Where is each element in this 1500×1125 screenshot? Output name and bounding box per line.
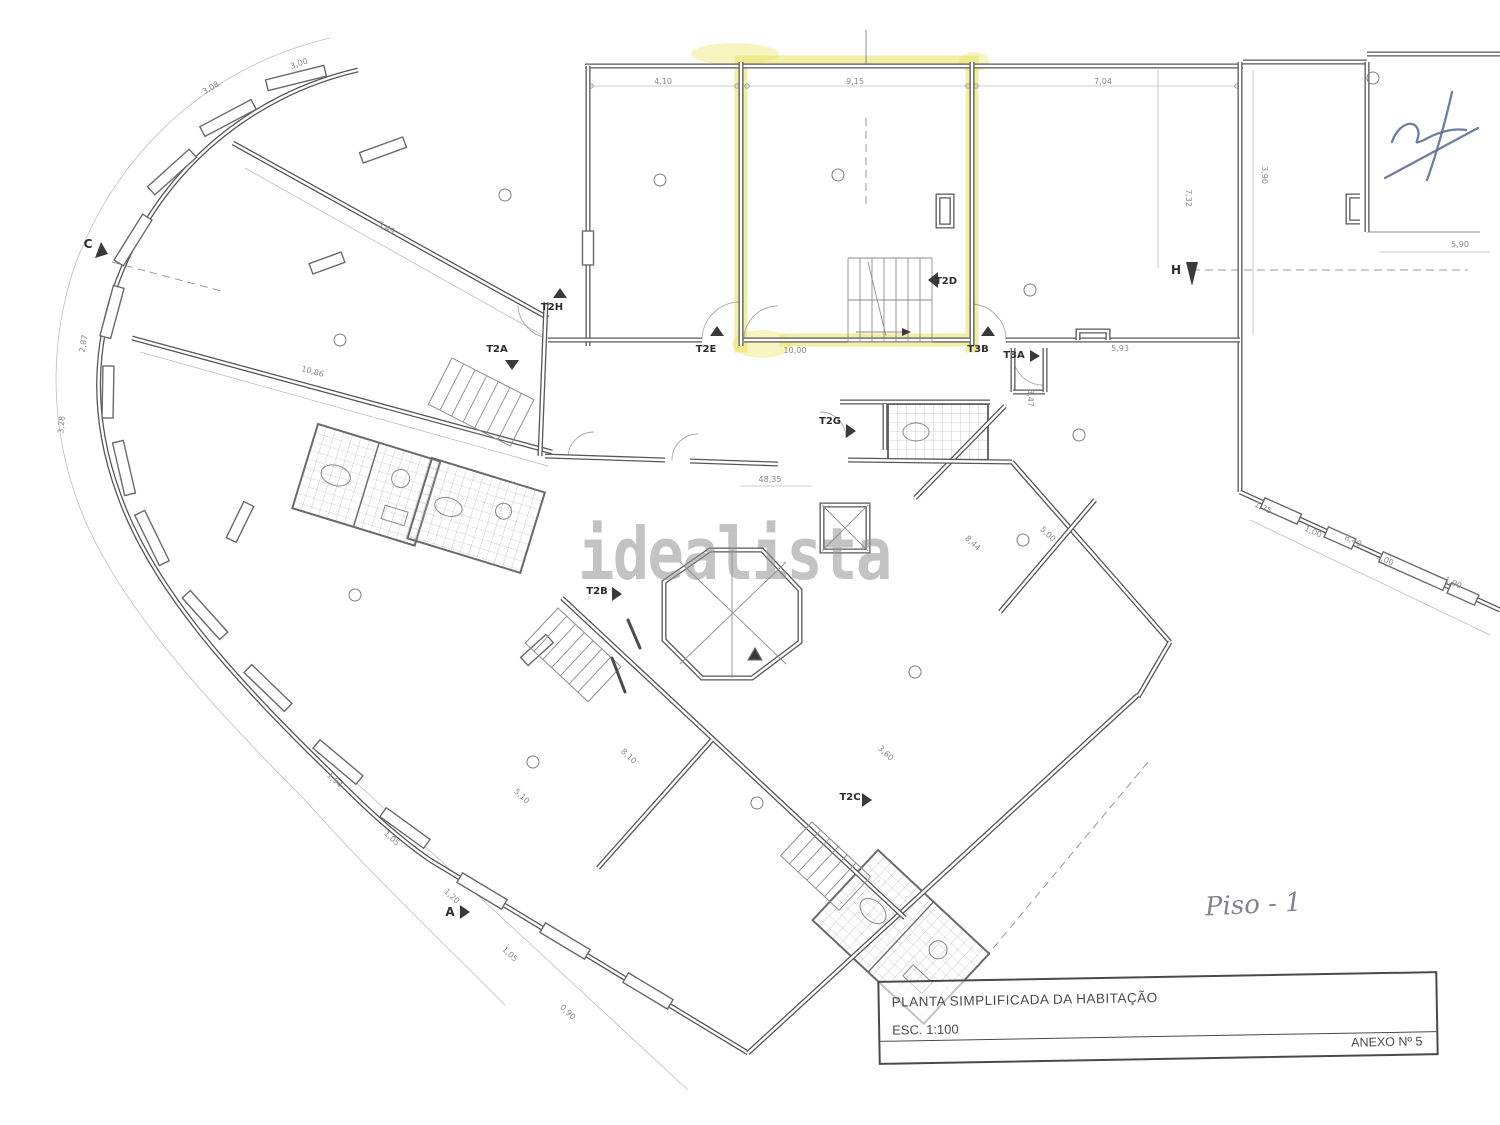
bathroom-left-2 [407, 458, 544, 573]
dimension-label: 7,32 [1184, 189, 1193, 207]
wall-core [1138, 642, 1170, 697]
dimension-label: 5,00 [1038, 525, 1057, 544]
unit-label: T2D [935, 276, 957, 287]
door-arrow-t3a [1030, 350, 1040, 362]
dimension-label: 3,00 [289, 56, 309, 71]
door-arrow-t3b [981, 326, 995, 336]
dimension-label: 3,28 [56, 416, 67, 435]
dimension-label: 8,44 [963, 534, 982, 553]
dimension-label: 5,49 [376, 220, 396, 237]
dimension-label: 2,87 [78, 334, 90, 353]
dimension-label: 4,10 [654, 77, 672, 86]
unit-label: T2A [486, 344, 508, 355]
dimension-label: 5,10 [512, 787, 531, 806]
stair-highlighted-unit [848, 258, 932, 342]
section-arrow-h [1186, 262, 1198, 286]
plan-annex: ANEXO Nº 5 [1351, 1034, 1422, 1049]
dimension-label: 5,90 [1451, 240, 1469, 249]
section-label: H [1171, 263, 1181, 277]
dimension-label: 1,05 [382, 829, 401, 848]
dimension-label: 48,35 [759, 475, 782, 484]
dimension-label: 0,90 [558, 1003, 577, 1022]
door-arrow-t2a [505, 360, 519, 370]
dimension-label: 9,15 [846, 77, 864, 86]
plan-title: PLANTA SIMPLIFICADA DA HABITAÇÃO [892, 990, 1158, 1010]
dimension-label: 1,20 [442, 887, 461, 906]
unit-label: T3B [967, 344, 988, 355]
room-markers [334, 72, 1379, 809]
floor-plan-page: T2ET3BT3AT2DT2GT2HT2AT2BT2CCAH4,109,157,… [0, 0, 1500, 1125]
dimension-label: 3,08 [201, 79, 221, 96]
unit-label: T2C [839, 792, 860, 803]
door-arrow-t2e [710, 326, 724, 336]
unit-label: T2H [541, 302, 563, 313]
door-arrow-t2g [846, 424, 856, 438]
plan-scale: ESC. 1:100 [892, 1021, 959, 1037]
dimension-label: 10,86 [300, 364, 324, 379]
dimension-label: 5,93 [1111, 344, 1129, 353]
section-label: C [84, 237, 93, 251]
wall-core [1012, 462, 1170, 642]
dimension-label: 3,60 [876, 744, 895, 763]
idealista-watermark: idealista [578, 512, 891, 596]
unit-label: T2E [696, 344, 717, 355]
section-arrow-a [460, 905, 470, 919]
dimension-label: 1,05 [500, 945, 519, 964]
highlighted-unit-outline [691, 43, 989, 358]
door-arrow-t2c [862, 793, 872, 807]
pencil-slash-1 [628, 620, 640, 648]
section-label: A [445, 905, 455, 919]
wall-core [562, 598, 905, 918]
dimension-label: 3,47 [1026, 389, 1035, 407]
wall-core [1000, 500, 1095, 612]
handwritten-floor-note: Piso - 1 [1204, 887, 1302, 922]
dimension-label: 10,00 [784, 346, 807, 355]
unit-label: T2G [819, 416, 841, 427]
dimension-label: 8,10 [619, 747, 638, 766]
door-arrow-t2h [553, 288, 567, 298]
section-arrow-c [95, 242, 108, 258]
dimension-label: 7,04 [1094, 77, 1112, 86]
title-block: PLANTA SIMPLIFICADA DA HABITAÇÃO ESC. 1:… [877, 971, 1438, 1065]
wall-core [598, 740, 712, 868]
dimension-label: 3,90 [1260, 166, 1269, 184]
pencil-slash-2 [612, 658, 625, 692]
bathroom-center [888, 404, 988, 460]
pen-scribble [1385, 92, 1478, 180]
unit-label: T3A [1003, 350, 1025, 361]
